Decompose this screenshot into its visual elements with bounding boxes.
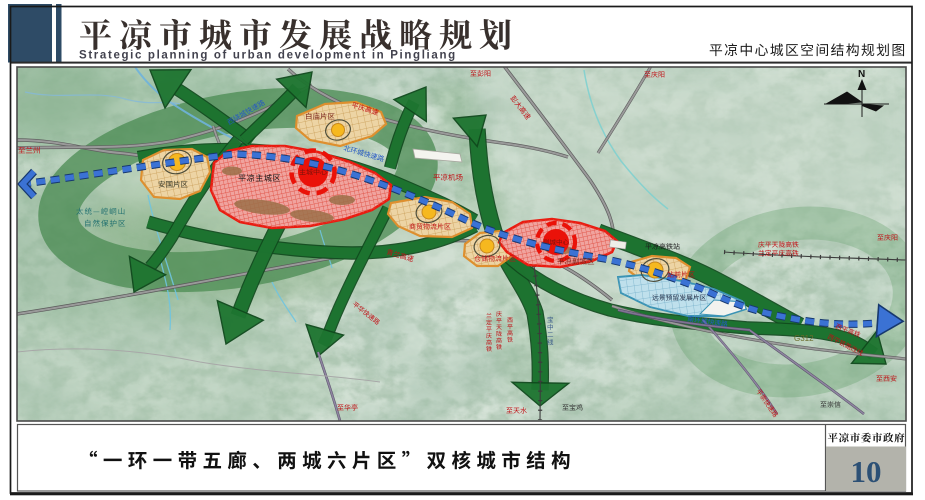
svg-text:10: 10 [851,454,882,489]
svg-text:N: N [858,69,865,80]
svg-text:G312: G312 [794,334,814,343]
svg-text:Strategic planning of urban de: Strategic planning of urban development … [79,50,457,62]
